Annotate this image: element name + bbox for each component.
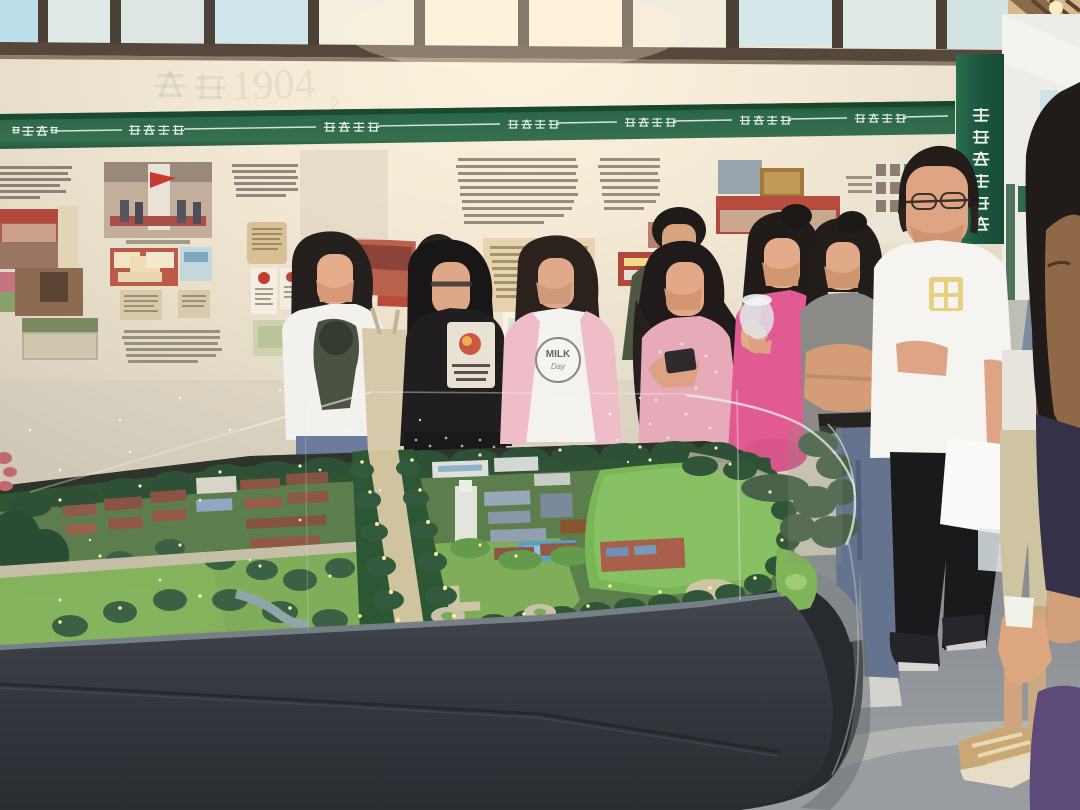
svg-text:Day: Day <box>551 362 566 371</box>
svg-text:1904: 1904 <box>231 61 317 110</box>
svg-text:MILK: MILK <box>546 349 571 360</box>
